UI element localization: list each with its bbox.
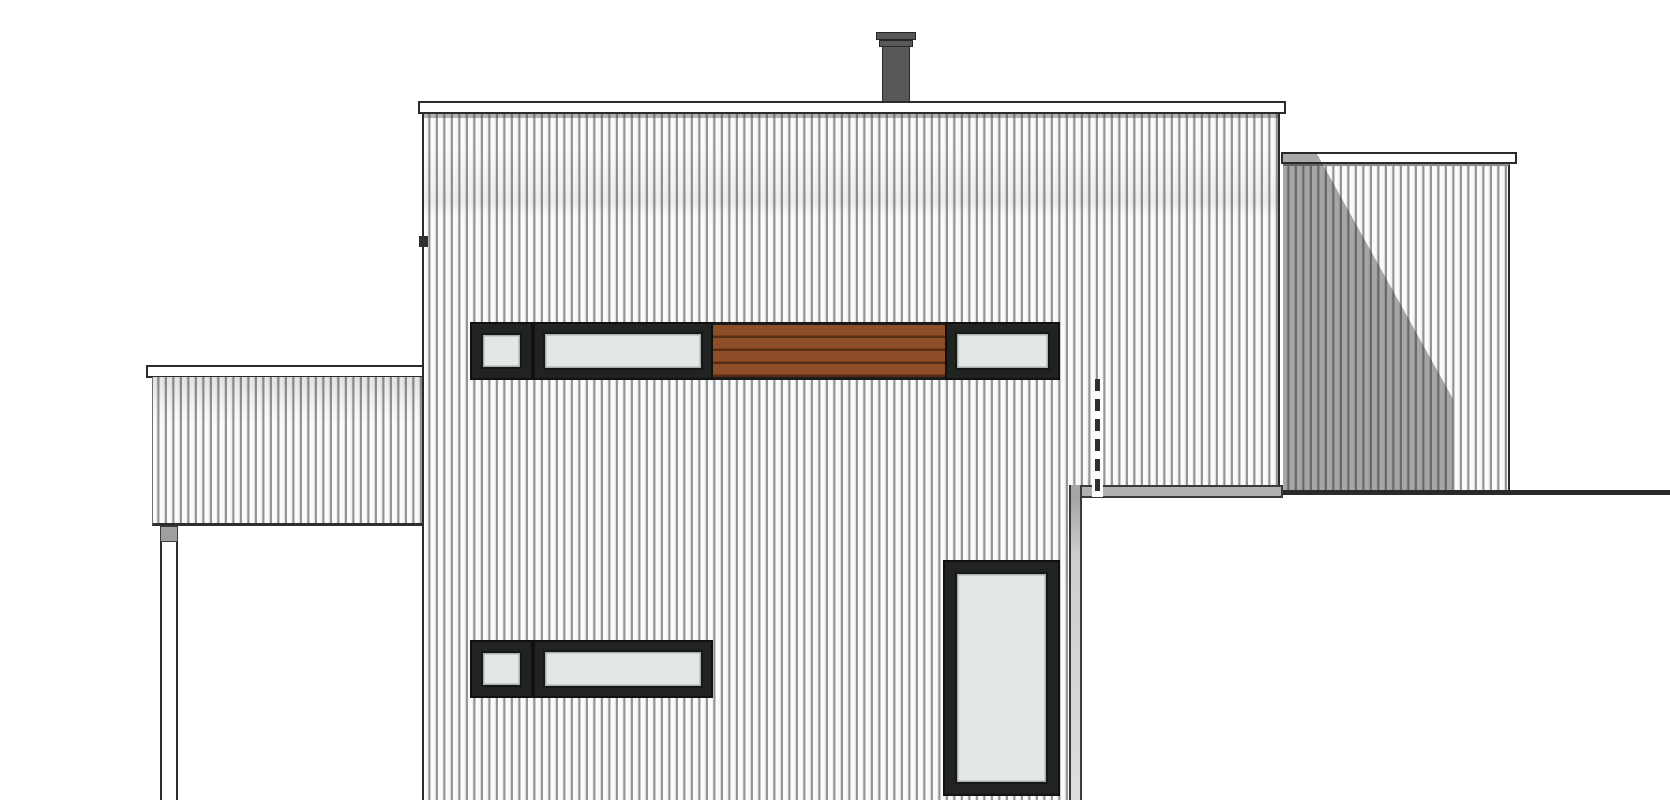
dashed-reference-line-dashes [1095,379,1100,497]
wall-soft-shading [424,148,1278,222]
rear-ground-line [1283,490,1670,495]
tall-glazed-door-glass [955,572,1048,784]
dashed-reference-line [1092,379,1103,497]
upper-small-window-glass [481,333,522,369]
tall-glazed-door [943,560,1060,796]
lower-long-window-glass [543,650,703,688]
elevation-drawing [0,0,1670,800]
main-roof-fascia [418,101,1286,114]
upper-long-window-glass [543,332,703,370]
carport-beam-shading [153,377,425,423]
carport-post-cap [160,526,178,542]
wall-edge-fitting [419,236,428,247]
upper-long-window [533,322,713,380]
foreground-roof-left-band [1069,485,1082,800]
carport-beam-cladding [152,377,425,526]
eave-shadow [424,114,1278,118]
carport-post [160,526,178,800]
lower-small-window [470,640,533,698]
upper-right-window-glass [955,332,1050,370]
lower-small-window-glass [481,651,522,687]
upper-small-window [470,322,533,380]
wood-slat-infill [713,322,945,380]
chimney-body [882,46,910,104]
chimney-cap [876,32,916,40]
upper-right-window [945,322,1060,380]
foreground-roof-plane [1082,497,1670,800]
lower-long-window [533,640,713,698]
